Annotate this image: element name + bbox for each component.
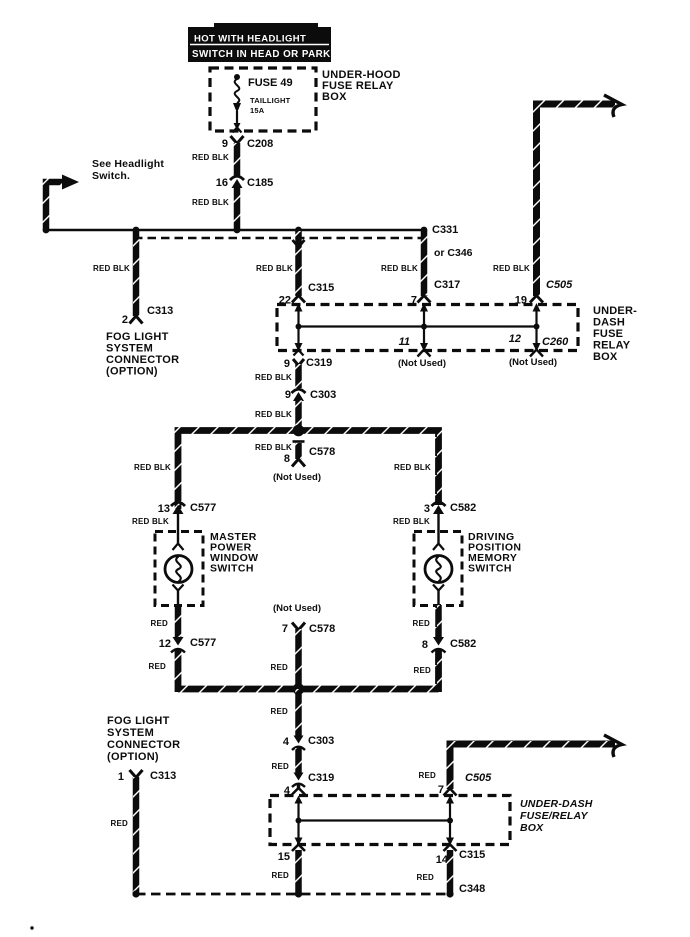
svg-text:HOT WITH HEADLIGHT: HOT WITH HEADLIGHT xyxy=(194,34,306,45)
svg-text:16: 16 xyxy=(216,177,228,189)
svg-text:C319: C319 xyxy=(308,772,334,784)
svg-text:12: 12 xyxy=(509,333,521,345)
svg-text:(Not Used): (Not Used) xyxy=(273,472,321,483)
svg-text:RED BLK: RED BLK xyxy=(192,153,229,162)
svg-text:CONNECTOR: CONNECTOR xyxy=(106,354,179,366)
svg-text:BOX: BOX xyxy=(322,91,347,103)
svg-text:RED BLK: RED BLK xyxy=(134,463,171,472)
svg-text:C331: C331 xyxy=(432,224,458,236)
svg-text:SWITCH IN HEAD OR PARK: SWITCH IN HEAD OR PARK xyxy=(192,49,331,60)
svg-text:RED: RED xyxy=(419,771,437,780)
svg-text:TAILLIGHT: TAILLIGHT xyxy=(250,96,291,105)
svg-text:C317: C317 xyxy=(434,279,460,291)
svg-text:15A: 15A xyxy=(250,106,265,115)
svg-text:RED: RED xyxy=(417,873,435,882)
svg-text:C505: C505 xyxy=(546,279,573,291)
svg-text:RED: RED xyxy=(414,666,432,675)
svg-text:RED BLK: RED BLK xyxy=(255,443,292,452)
svg-text:RED: RED xyxy=(272,871,290,880)
svg-text:RED: RED xyxy=(151,619,169,628)
svg-text:C313: C313 xyxy=(150,770,176,782)
svg-text:9: 9 xyxy=(284,358,290,370)
svg-text:4: 4 xyxy=(283,736,290,748)
svg-text:RED BLK: RED BLK xyxy=(192,198,229,207)
svg-text:C185: C185 xyxy=(247,177,273,189)
svg-text:See Headlight: See Headlight xyxy=(92,158,164,170)
svg-text:RED: RED xyxy=(149,662,167,671)
svg-text:C577: C577 xyxy=(190,502,216,514)
svg-text:RED BLK: RED BLK xyxy=(132,517,169,526)
svg-text:FUSE: FUSE xyxy=(593,328,623,340)
svg-text:FOG LIGHT: FOG LIGHT xyxy=(107,715,170,727)
svg-text:(OPTION): (OPTION) xyxy=(107,751,159,763)
svg-text:RED BLK: RED BLK xyxy=(394,463,431,472)
svg-text:C313: C313 xyxy=(147,305,173,317)
svg-text:11: 11 xyxy=(399,336,410,348)
svg-text:15: 15 xyxy=(278,851,290,863)
svg-text:C578: C578 xyxy=(309,446,335,458)
svg-text:C577: C577 xyxy=(190,637,216,649)
svg-text:DASH: DASH xyxy=(593,317,625,329)
svg-text:SWITCH: SWITCH xyxy=(468,563,512,575)
svg-text:RED: RED xyxy=(271,707,289,716)
svg-text:SYSTEM: SYSTEM xyxy=(107,727,154,739)
svg-text:8: 8 xyxy=(284,453,290,465)
svg-text:13: 13 xyxy=(158,503,170,515)
svg-text:CONNECTOR: CONNECTOR xyxy=(107,739,180,751)
svg-text:or C346: or C346 xyxy=(434,247,473,259)
svg-text:C303: C303 xyxy=(308,735,334,747)
svg-text:Switch.: Switch. xyxy=(92,170,130,182)
svg-text:SWITCH: SWITCH xyxy=(210,563,254,575)
svg-text:7: 7 xyxy=(282,623,288,635)
svg-text:RED: RED xyxy=(111,819,129,828)
svg-text:FOG LIGHT: FOG LIGHT xyxy=(106,331,169,343)
svg-text:12: 12 xyxy=(159,638,171,650)
svg-text:RED BLK: RED BLK xyxy=(493,264,530,273)
svg-text:C315: C315 xyxy=(308,282,334,294)
svg-text:C582: C582 xyxy=(450,638,476,650)
svg-text:BOX: BOX xyxy=(520,822,544,834)
svg-text:C260: C260 xyxy=(542,336,569,348)
svg-text:C315: C315 xyxy=(459,849,485,861)
svg-text:(Not Used): (Not Used) xyxy=(509,357,557,368)
svg-text:C582: C582 xyxy=(450,502,476,514)
svg-text:RED BLK: RED BLK xyxy=(255,373,292,382)
svg-text:2: 2 xyxy=(122,314,128,326)
svg-text:RED BLK: RED BLK xyxy=(381,264,418,273)
svg-text:C303: C303 xyxy=(310,389,336,401)
svg-text:BOX: BOX xyxy=(593,351,618,363)
svg-text:C348: C348 xyxy=(459,883,485,895)
svg-text:3: 3 xyxy=(424,503,430,515)
svg-text:UNDER-: UNDER- xyxy=(593,305,637,317)
svg-text:RED BLK: RED BLK xyxy=(255,410,292,419)
svg-text:RED BLK: RED BLK xyxy=(93,264,130,273)
svg-text:RED: RED xyxy=(271,663,289,672)
svg-text:RELAY: RELAY xyxy=(593,340,631,352)
svg-text:(Not Used): (Not Used) xyxy=(273,603,321,614)
svg-text:1: 1 xyxy=(118,771,124,783)
svg-text:C208: C208 xyxy=(247,138,273,150)
svg-text:(Not Used): (Not Used) xyxy=(398,358,446,369)
svg-text:RED: RED xyxy=(272,762,290,771)
svg-text:RED: RED xyxy=(413,619,431,628)
svg-text:8: 8 xyxy=(422,639,428,651)
svg-text:(OPTION): (OPTION) xyxy=(106,366,158,378)
svg-text:UNDER-DASH: UNDER-DASH xyxy=(520,798,593,810)
svg-text:RED BLK: RED BLK xyxy=(393,517,430,526)
svg-text:9: 9 xyxy=(285,389,291,401)
svg-text:SYSTEM: SYSTEM xyxy=(106,343,153,355)
svg-text:C319: C319 xyxy=(306,357,332,369)
svg-text:C505: C505 xyxy=(465,772,492,784)
svg-text:RED BLK: RED BLK xyxy=(256,264,293,273)
svg-text:C578: C578 xyxy=(309,623,335,635)
svg-text:FUSE/RELAY: FUSE/RELAY xyxy=(520,810,589,822)
svg-text:9: 9 xyxy=(222,138,228,150)
svg-text:FUSE 49: FUSE 49 xyxy=(248,77,293,89)
